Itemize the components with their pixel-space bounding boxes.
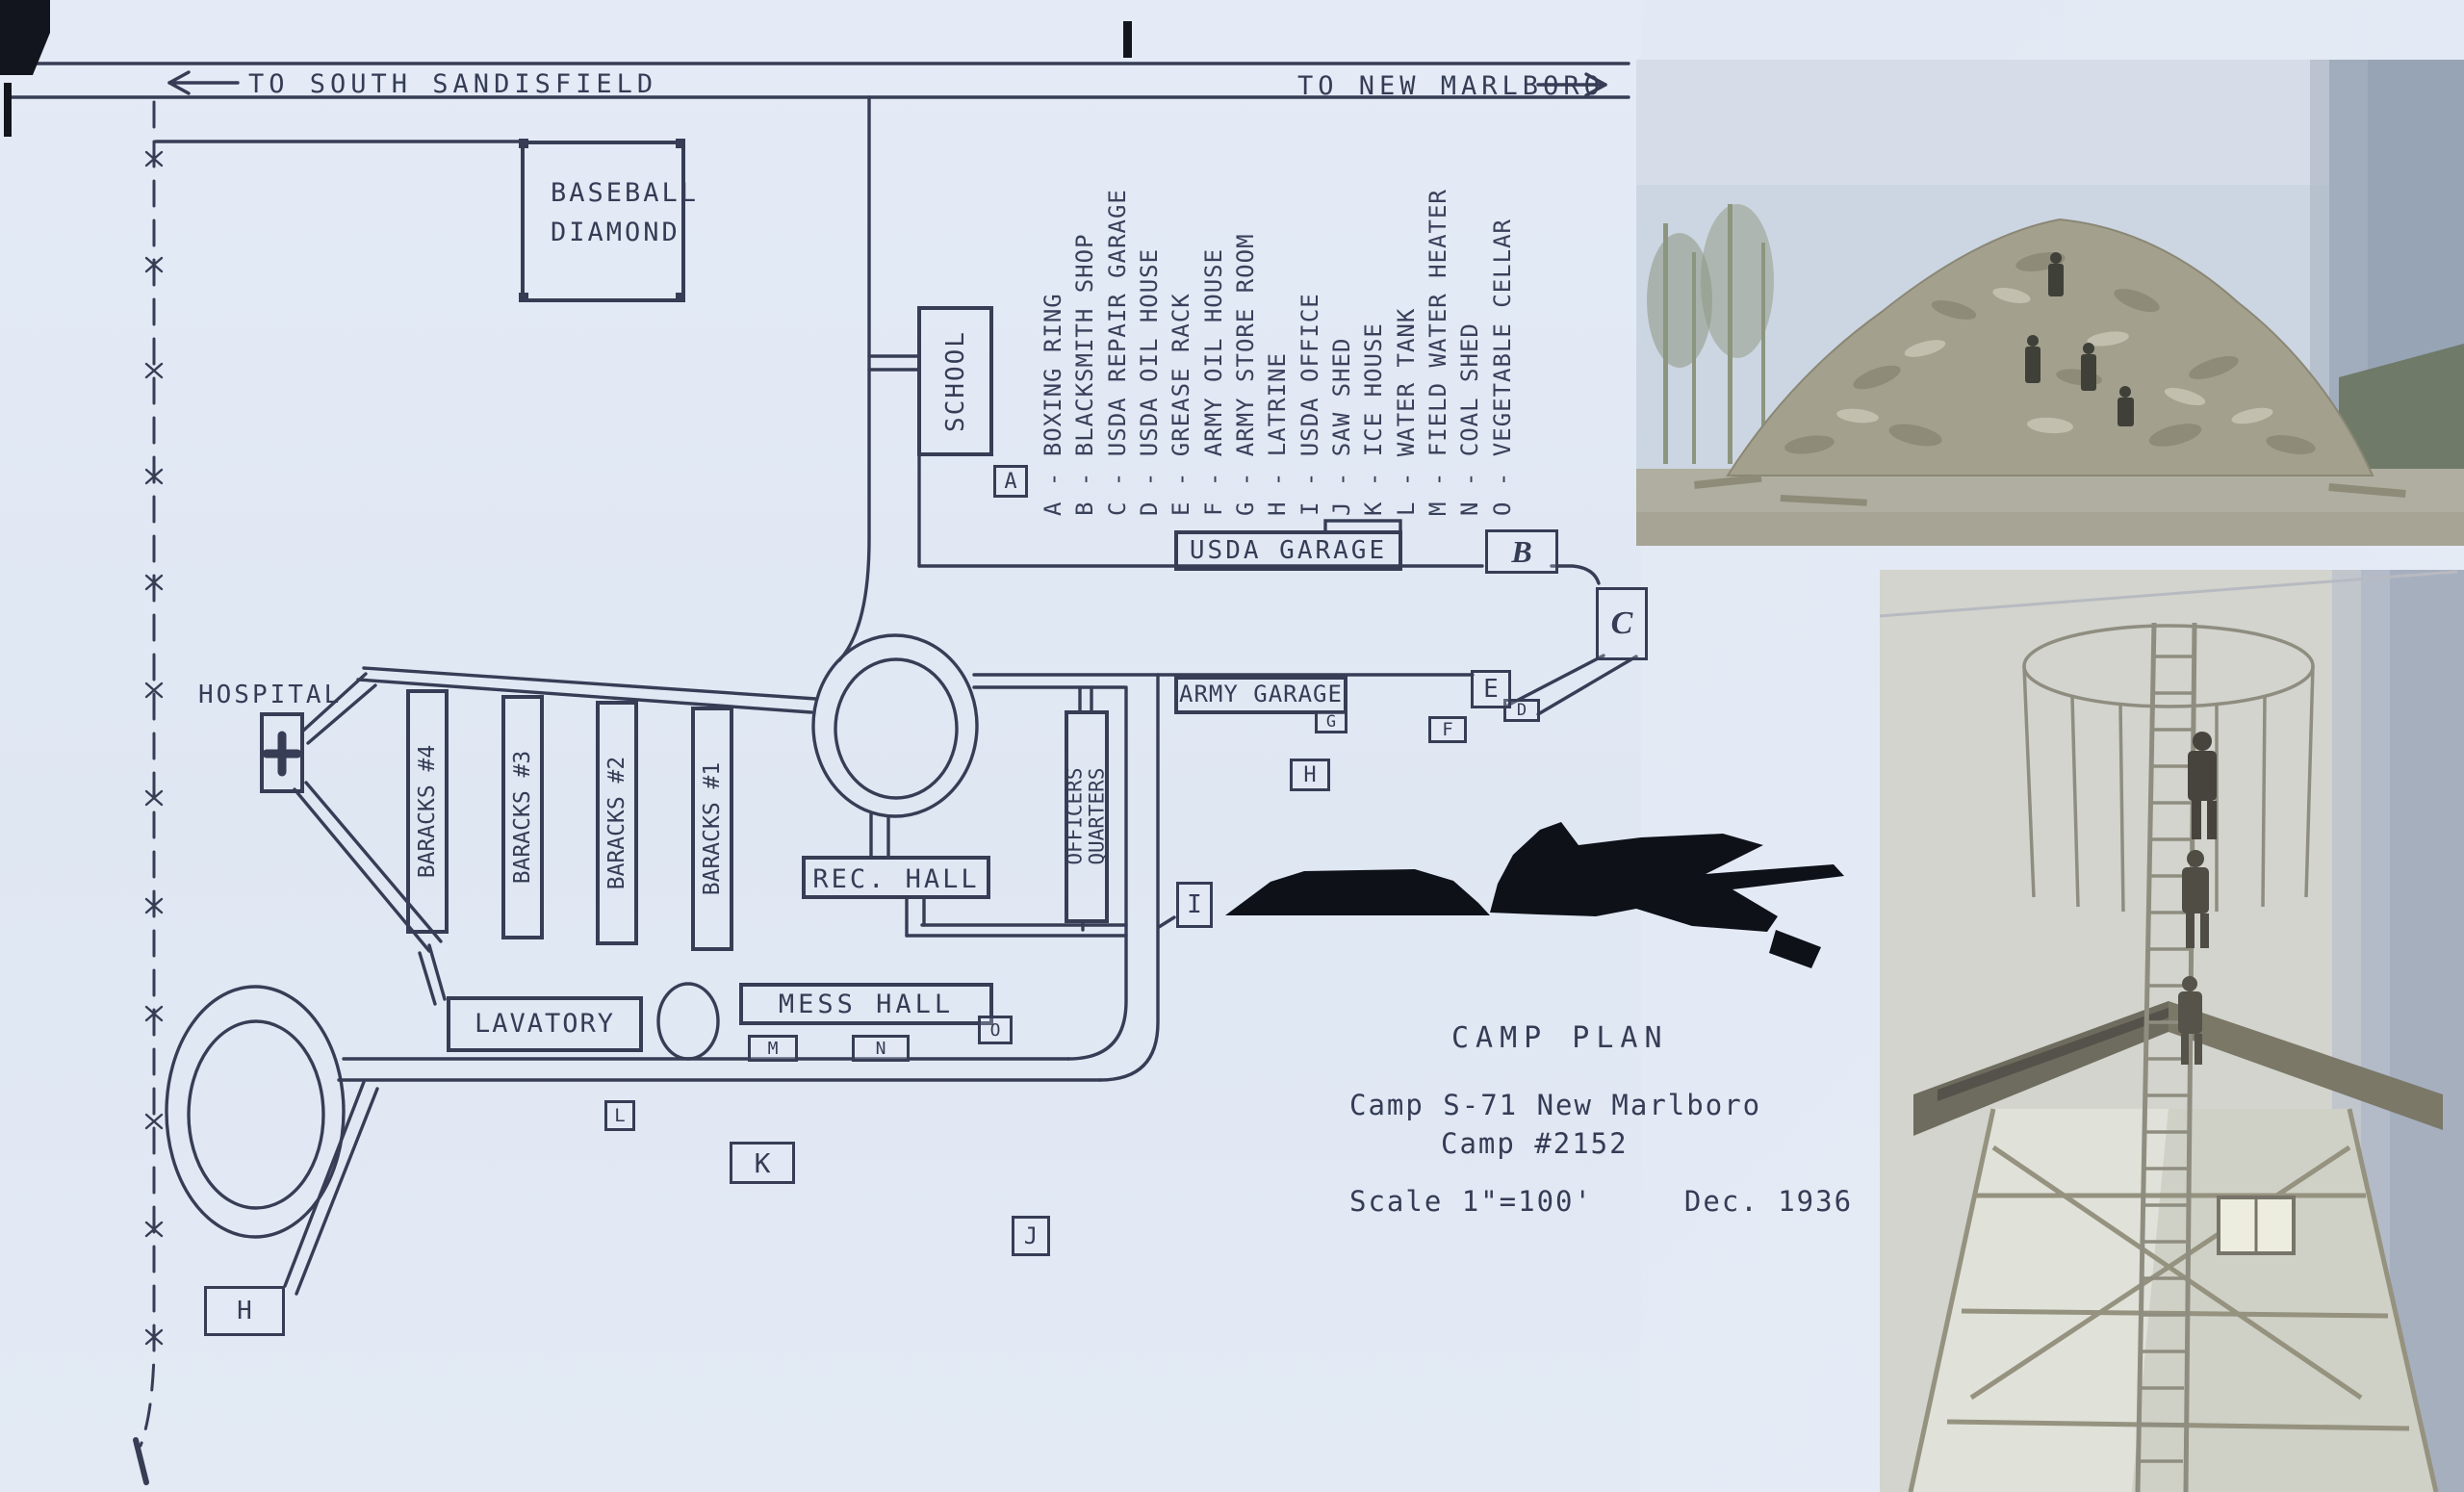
barracks-4-label: BARACKS #4 [408, 691, 447, 932]
lavatory-label: LAVATORY [449, 1009, 641, 1039]
barracks-1-label: BARACKS #1 [693, 708, 731, 949]
legend-item-m: M - FIELD WATER HEATER [1424, 189, 1451, 516]
scanned-camp-plan-page: TO SOUTH SANDISFIELD TO NEW MARLBORO BAS… [0, 0, 2464, 1492]
woodpile-photo [1636, 60, 2464, 546]
water-tower-photo [1880, 570, 2464, 1492]
legend-item-d: D - USDA OIL HOUSE [1136, 248, 1163, 516]
marker-saw-shed: J [1012, 1216, 1050, 1256]
marker-usda-office: I [1176, 882, 1213, 928]
legend-item-j: J - SAW SHED [1328, 338, 1355, 516]
page-title: CAMP PLAN [1451, 1022, 1669, 1056]
left-arrow-icon [169, 72, 238, 93]
ink-blot-artifact [1225, 822, 1844, 968]
hospital-label: HOSPITAL [198, 682, 342, 710]
marker-latrine-west: H [204, 1286, 285, 1336]
road-sign-new-marlboro: TO NEW MARLBORO [1297, 71, 1604, 101]
legend-item-f: F - ARMY OIL HOUSE [1200, 248, 1227, 516]
baseball-diamond-label: BASEBALL DIAMOND [551, 178, 699, 247]
marker-army-store-room: G [1315, 710, 1347, 733]
officers-quarters-label: OFFICERS QUARTERS [1066, 712, 1107, 921]
rec-hall-label: REC. HALL [804, 864, 988, 894]
marker-grease-rack: E [1471, 670, 1511, 708]
legend-item-h: H - LATRINE [1264, 352, 1291, 516]
property-line-dashed [136, 102, 154, 1482]
school-road [839, 97, 869, 660]
camp-name: Camp S-71 New Marlboro [1349, 1090, 1761, 1121]
legend-item-i: I - USDA OFFICE [1296, 293, 1323, 516]
barracks-3-label: BARACKS #3 [503, 697, 542, 938]
usda-garage-label: USDA GARAGE [1176, 537, 1400, 566]
marker-blacksmith-shop: B [1485, 529, 1558, 574]
mess-hall-label: MESS HALL [741, 990, 991, 1019]
legend-item-e: E - GREASE RACK [1168, 293, 1194, 516]
legend-item-a: A - BOXING RING [1039, 293, 1066, 516]
tree-circle [658, 984, 718, 1059]
road-sign-south-sandisfield: TO SOUTH SANDISFIELD [248, 69, 657, 99]
marker-coal-shed: N [852, 1035, 910, 1062]
marker-latrine-east: H [1290, 759, 1330, 791]
barracks-2-label: BARACKS #2 [598, 703, 636, 943]
central-loop-outer [813, 635, 977, 816]
camp-number: Camp #2152 [1441, 1128, 1629, 1160]
marker-army-oil-house: F [1428, 716, 1467, 743]
legend-item-g: G - ARMY STORE ROOM [1232, 233, 1259, 516]
marker-field-water-heater: M [748, 1035, 798, 1062]
legend-item-c: C - USDA REPAIR GARAGE [1104, 189, 1131, 516]
marker-boxing-ring: A [993, 465, 1028, 498]
date-note: Dec. 1936 [1684, 1185, 1853, 1218]
school-label: SCHOOL [919, 308, 991, 454]
legend-item-b: B - BLACKSMITH SHOP [1071, 233, 1098, 516]
legend-item-n: N - COAL SHED [1456, 322, 1483, 516]
army-garage-label: ARMY GARAGE [1176, 682, 1346, 708]
central-loop-inner [835, 659, 957, 798]
scan-tick-artifact [1123, 21, 1132, 58]
marker-usda-repair-garage: C [1596, 587, 1648, 660]
marker-ice-house: K [730, 1142, 795, 1184]
turnaround-inner [189, 1021, 323, 1208]
scan-edge-artifact [4, 83, 12, 137]
marker-water-tank: L [604, 1100, 635, 1131]
legend-item-k: K - ICE HOUSE [1360, 322, 1387, 516]
legend-item-o: O - VEGETABLE CELLAR [1489, 219, 1516, 516]
scale-note: Scale 1"=100' [1349, 1185, 1593, 1218]
legend-item-l: L - WATER TANK [1393, 308, 1420, 516]
marker-vegetable-cellar: O [978, 1016, 1013, 1044]
scale-date-line: Scale 1"=100' Dec. 1936 [1349, 1186, 1853, 1218]
